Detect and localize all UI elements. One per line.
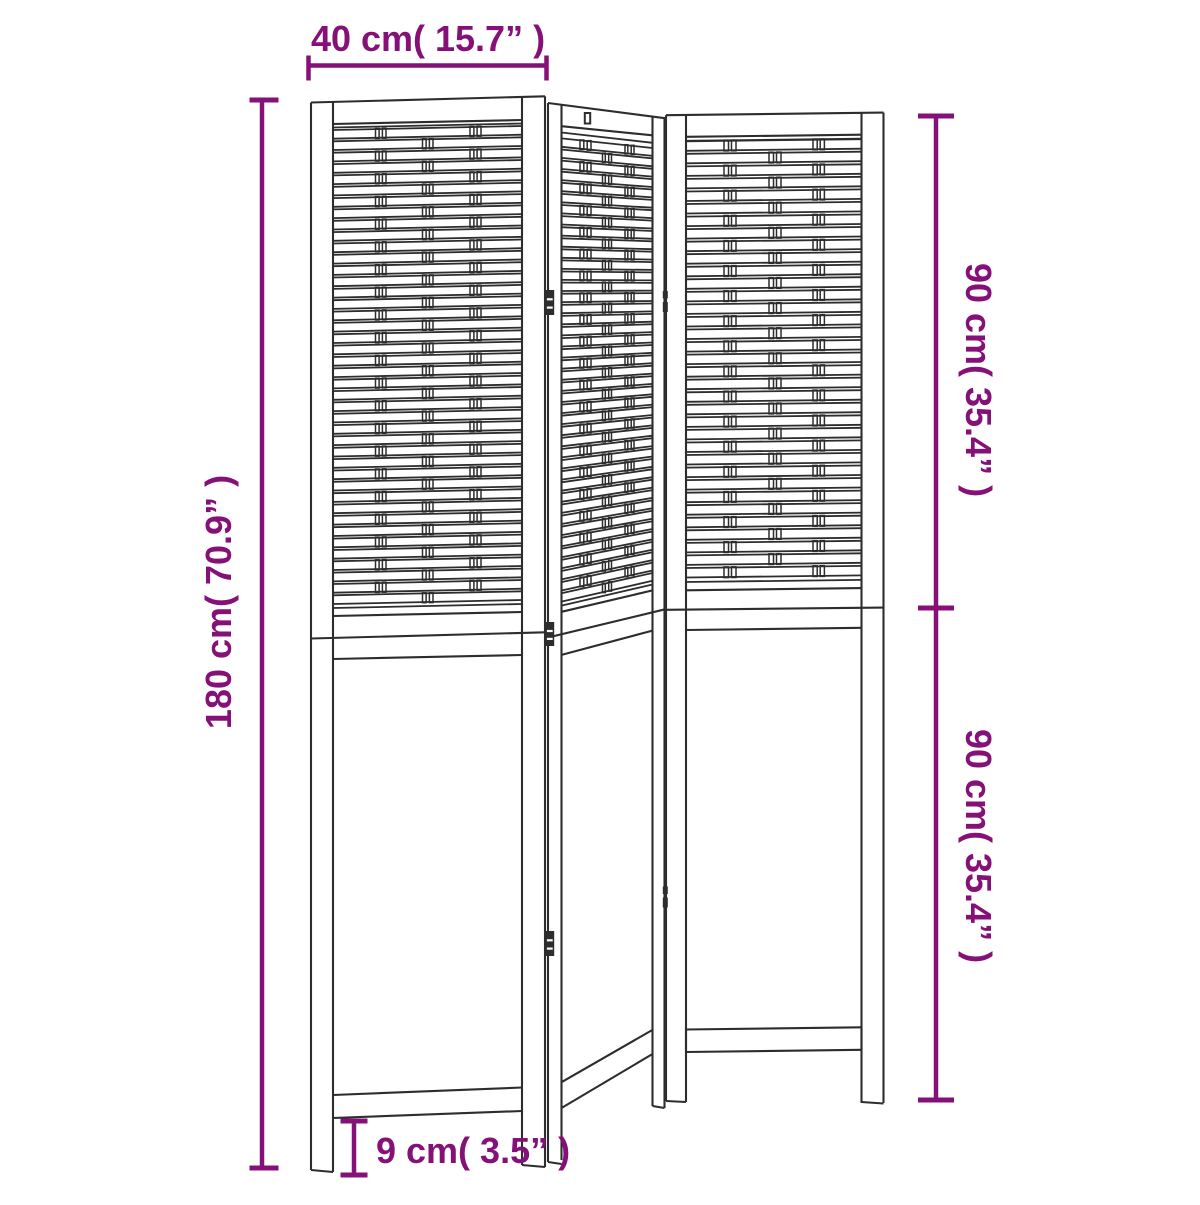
svg-text:40 cm( 15.7” ): 40 cm( 15.7” ) (311, 18, 545, 59)
svg-text:90 cm( 35.4” ): 90 cm( 35.4” ) (958, 263, 999, 497)
svg-text:9 cm( 3.5” ): 9 cm( 3.5” ) (376, 1130, 570, 1171)
svg-text:90 cm( 35.4” ): 90 cm( 35.4” ) (958, 729, 999, 963)
svg-text:180 cm( 70.9” ): 180 cm( 70.9” ) (198, 475, 239, 729)
